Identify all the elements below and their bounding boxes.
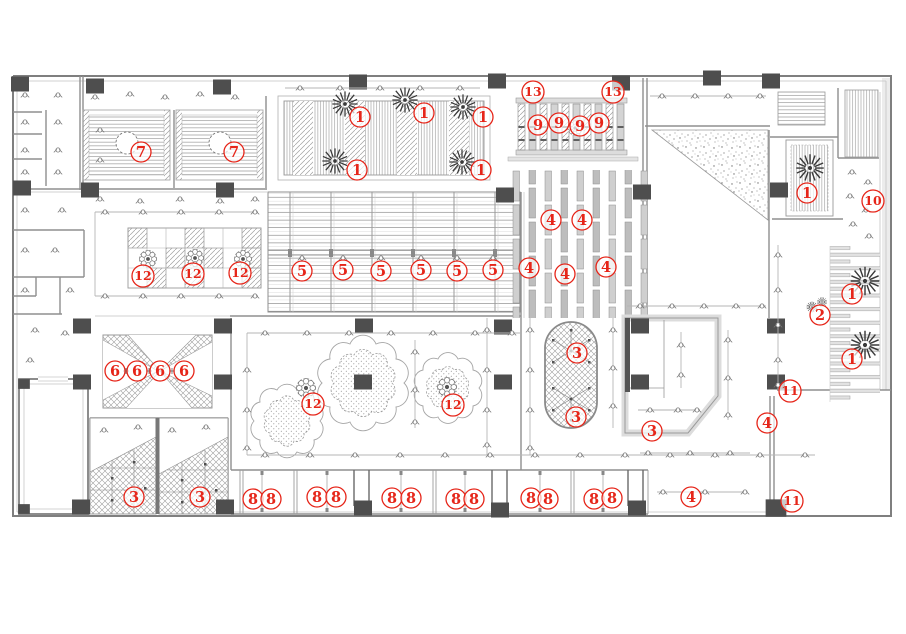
annotation-label: 7	[136, 144, 146, 161]
annotation-label: 4	[560, 266, 570, 283]
floor-plan-canvas: 7711111131399994444455555512121266661212…	[0, 0, 906, 634]
floor-plan-svg: 7711111131399994444455555512121266661212…	[0, 0, 906, 634]
annotation-label: 6	[110, 363, 120, 380]
annotation-label: 13	[604, 84, 621, 99]
annotation-label: 1	[802, 185, 812, 202]
elevator-shaft	[19, 377, 88, 514]
annotation-label: 1	[847, 351, 857, 368]
annotation-label: 5	[297, 263, 307, 280]
annotation-label: 8	[312, 489, 322, 506]
annotation-label: 7	[229, 144, 239, 161]
annotation-label: 8	[451, 491, 461, 508]
annotation-label: 4	[601, 259, 611, 276]
annotation-label: 3	[647, 423, 657, 440]
annotation-label: 2	[815, 307, 825, 324]
annotation-label: 9	[554, 115, 564, 132]
annotation-label: 11	[783, 493, 800, 508]
annotation-label: 9	[533, 117, 543, 134]
annotation-label: 1	[476, 162, 486, 179]
annotation-label: 8	[266, 491, 276, 508]
plant-icon	[796, 154, 824, 182]
annotation-label: 8	[607, 490, 617, 507]
annotation-label: 3	[572, 345, 582, 362]
floor-plan: 7711111131399994444455555512121266661212…	[11, 71, 892, 518]
annotation-label: 4	[686, 489, 696, 506]
annotation-label: 6	[155, 363, 165, 380]
annotation-label: 13	[524, 84, 541, 99]
annotation-label: 8	[248, 491, 258, 508]
annotation-label: 8	[543, 491, 553, 508]
slat-field-4	[506, 170, 654, 318]
annotation-label: 12	[134, 268, 151, 283]
plant-icon	[450, 94, 475, 119]
annotation-label: 5	[488, 262, 498, 279]
annotation-label: 9	[594, 115, 604, 132]
annotation-label: 8	[387, 490, 397, 507]
grid-ceiling-5	[268, 192, 520, 312]
annotation-label: 12	[184, 266, 201, 281]
plant-icon	[392, 87, 417, 112]
annotation-label: 10	[864, 193, 882, 208]
annotation-label: 9	[575, 118, 585, 135]
annotation-label: 5	[416, 262, 426, 279]
annotation-label: 4	[524, 260, 534, 277]
annotation-label: 8	[469, 491, 479, 508]
annotation-label: 3	[195, 489, 205, 506]
annotation-label: 8	[589, 491, 599, 508]
annotation-label: 4	[546, 212, 556, 229]
annotation-label: 8	[406, 490, 416, 507]
annotation-label: 12	[231, 265, 248, 280]
plant-icon	[322, 148, 347, 173]
annotation-label: 5	[376, 263, 386, 280]
annotation-label: 6	[179, 363, 189, 380]
right-slat-wall	[830, 246, 880, 402]
annotation-label: 11	[781, 383, 798, 398]
annotation-label: 1	[352, 162, 362, 179]
annotation-label: 1	[847, 286, 857, 303]
stipple-triangle	[652, 130, 768, 220]
annotation-label: 8	[526, 490, 536, 507]
annotation-label: 1	[478, 109, 488, 126]
annotation-label: 1	[355, 109, 365, 126]
annotation-label: 4	[577, 212, 587, 229]
annotation-label: 8	[331, 489, 341, 506]
annotation-label: 3	[571, 409, 581, 426]
annotation-label: 5	[452, 263, 462, 280]
annotation-label: 4	[762, 415, 772, 432]
annotation-label: 1	[419, 105, 429, 122]
annotation-label: 12	[304, 396, 321, 411]
annotation-label: 12	[444, 397, 461, 412]
annotation-label: 3	[129, 489, 139, 506]
annotation-label: 6	[132, 363, 142, 380]
annotation-label: 5	[338, 262, 348, 279]
